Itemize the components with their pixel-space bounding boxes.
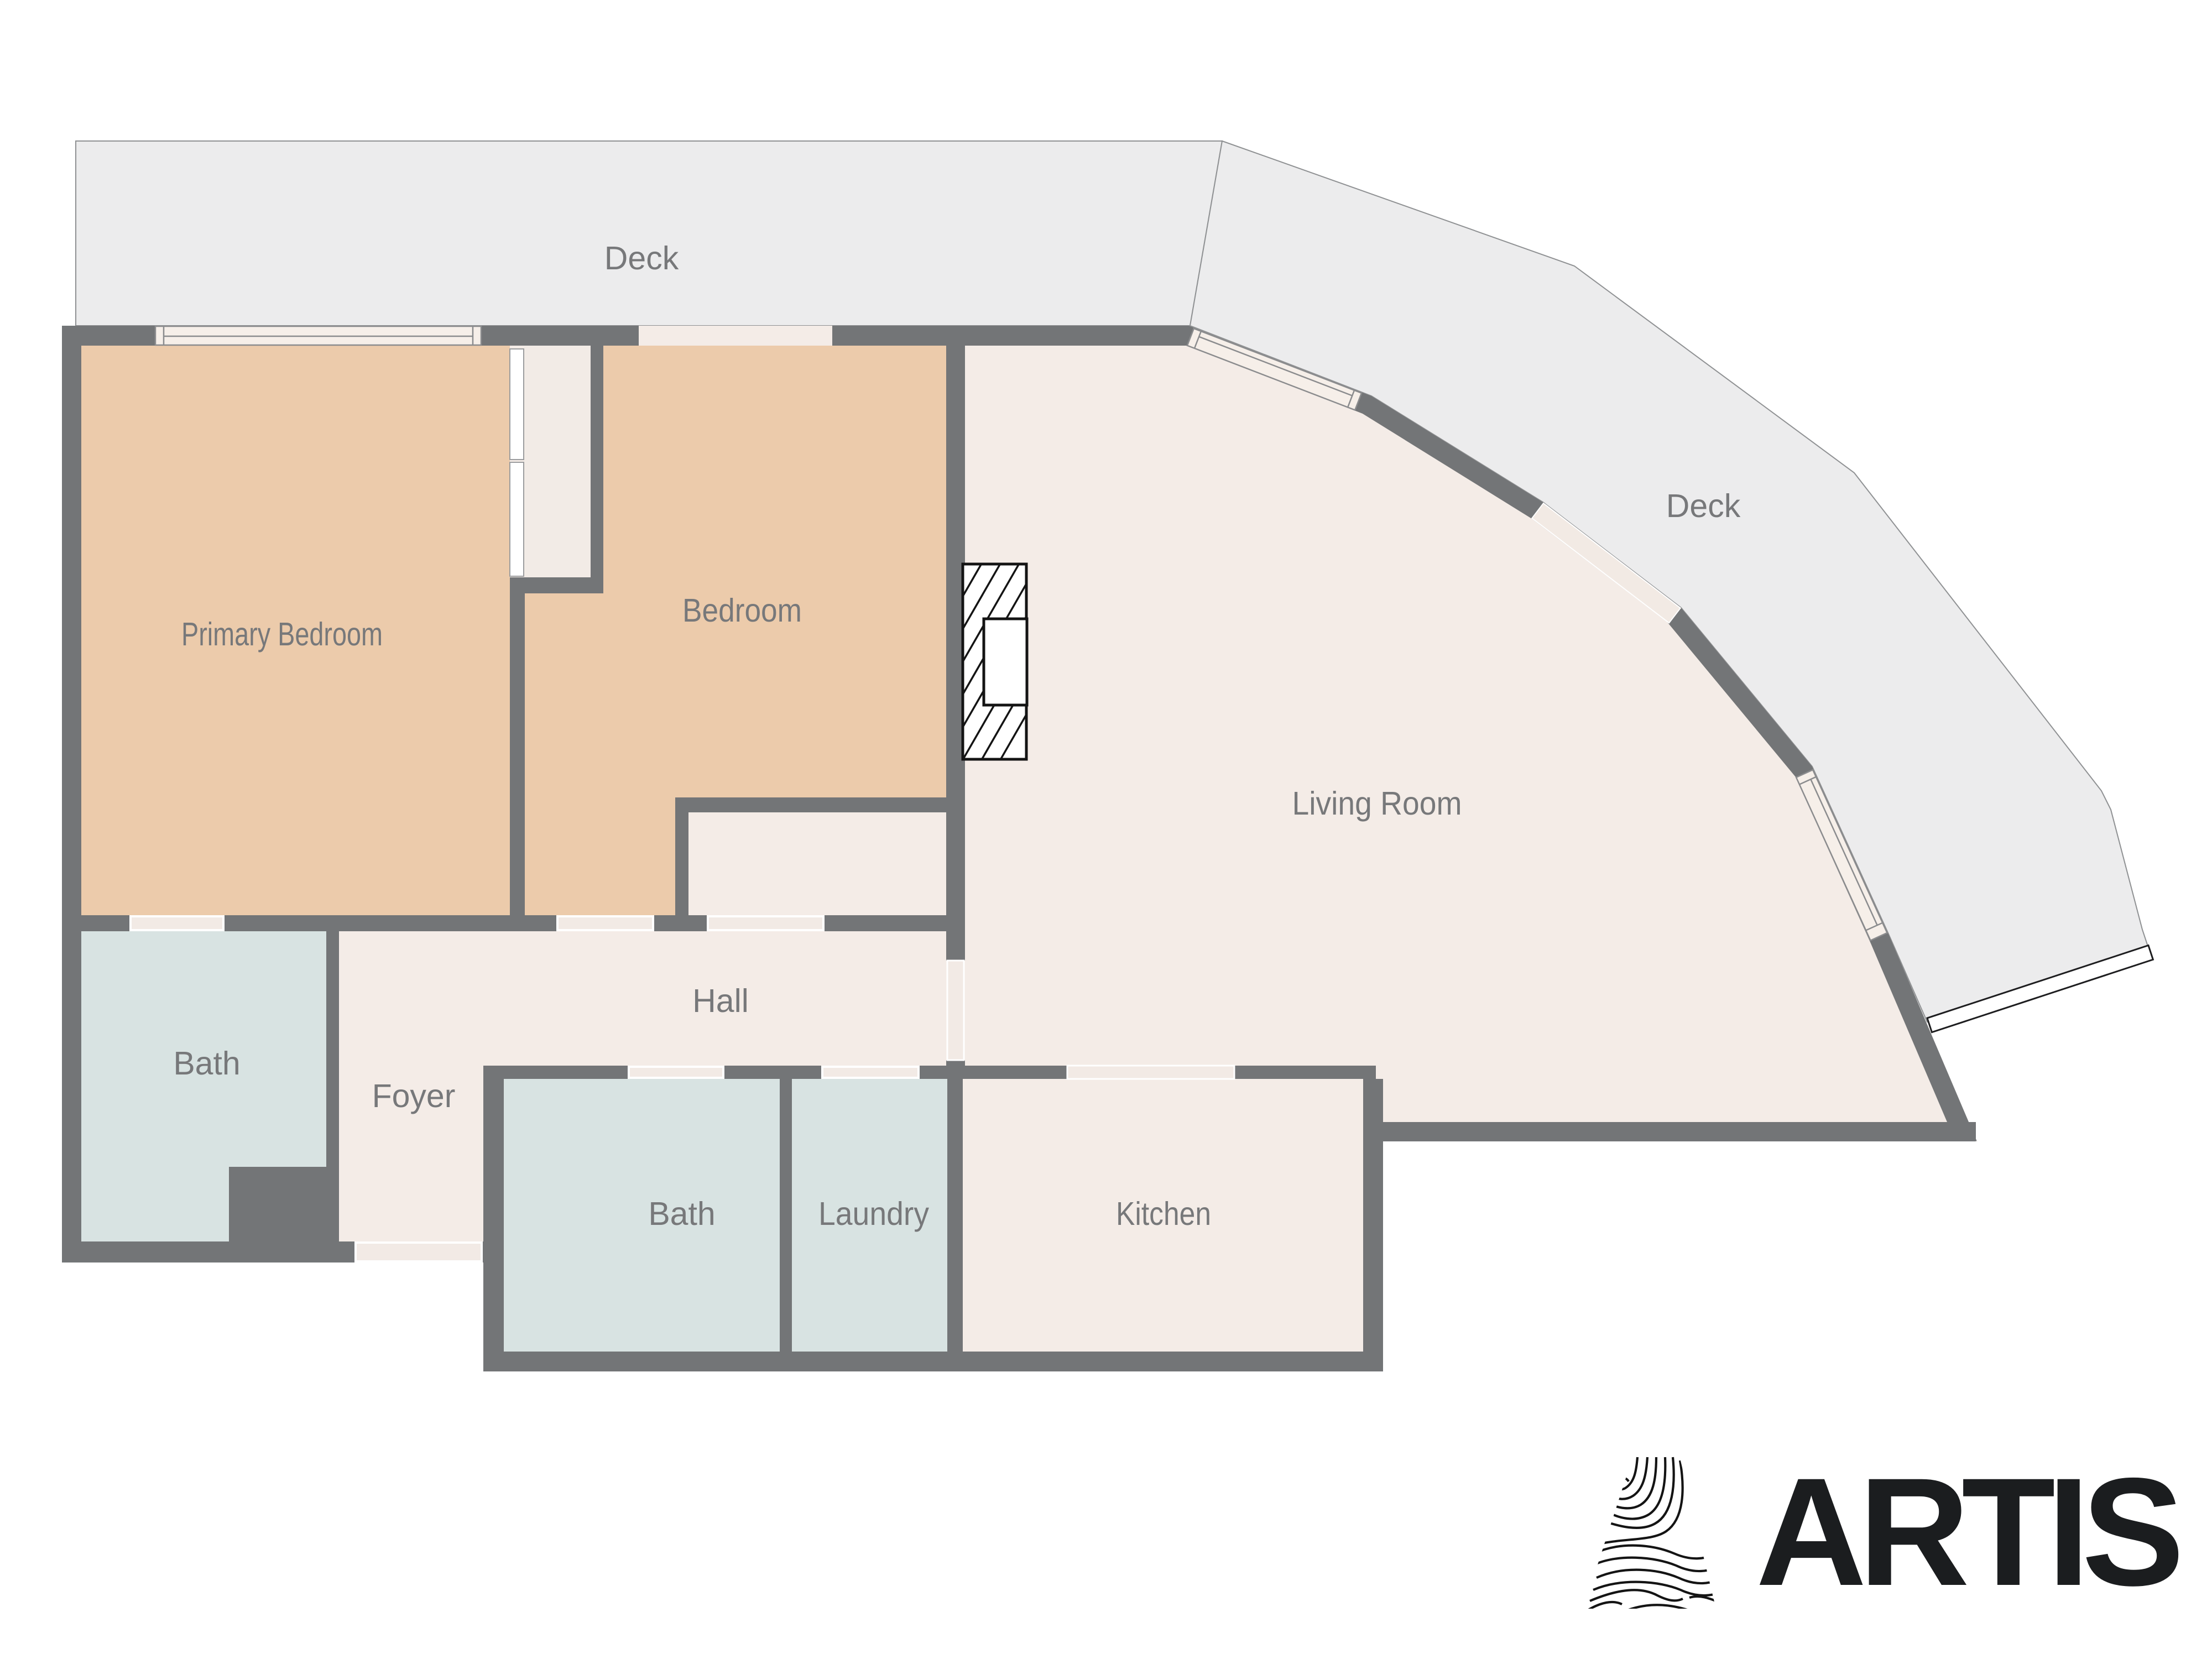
svg-text:Primary Bedroom: Primary Bedroom bbox=[181, 616, 383, 653]
svg-text:ARTIS: ARTIS bbox=[1756, 1446, 2184, 1618]
svg-text:Deck: Deck bbox=[604, 240, 679, 276]
svg-text:Foyer: Foyer bbox=[372, 1078, 456, 1114]
svg-text:Bedroom: Bedroom bbox=[682, 592, 802, 629]
svg-text:Living Room: Living Room bbox=[1292, 785, 1462, 822]
svg-text:Kitchen: Kitchen bbox=[1116, 1196, 1211, 1232]
svg-text:Bath: Bath bbox=[173, 1045, 240, 1082]
svg-text:Deck: Deck bbox=[1666, 488, 1741, 524]
svg-text:Laundry: Laundry bbox=[818, 1196, 929, 1232]
svg-text:Hall: Hall bbox=[692, 983, 749, 1019]
svg-text:Bath: Bath bbox=[648, 1196, 715, 1232]
